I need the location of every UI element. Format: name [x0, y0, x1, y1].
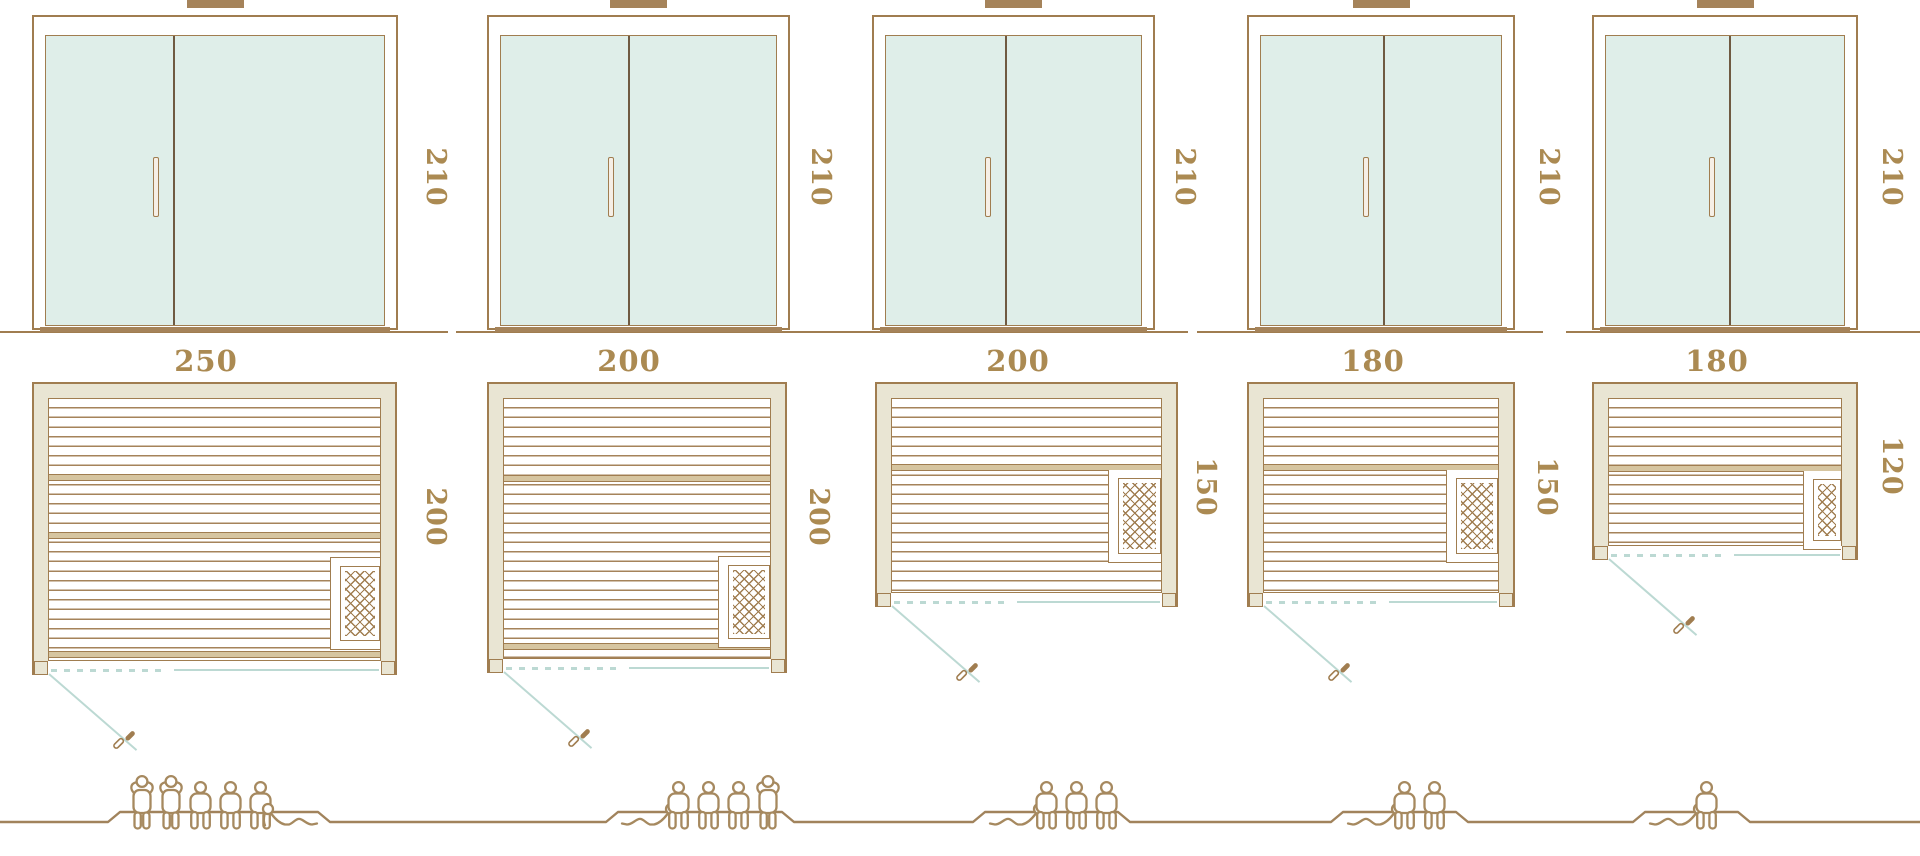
door-handle-icon	[1709, 157, 1715, 217]
open-door-leaf-icon	[954, 659, 982, 687]
door-threshold	[1600, 327, 1850, 332]
plan-interior-benches	[503, 398, 771, 659]
door-handle-icon	[985, 157, 991, 217]
door-height-label: 210	[1533, 137, 1563, 217]
door-threshold	[880, 327, 1147, 332]
plan-depth-label: 200	[420, 477, 450, 557]
door-divider	[1383, 36, 1385, 325]
roof-vent-icon	[985, 0, 1042, 8]
glass-wall-line	[1389, 601, 1497, 603]
wall-post	[489, 659, 503, 673]
bench-edge	[49, 651, 380, 658]
standing-person-icon	[160, 776, 181, 828]
door-opening-dashed-line	[894, 601, 1006, 604]
door-divider	[1729, 36, 1731, 325]
plan-interior-benches	[48, 398, 381, 661]
plan-width-label: 180	[1313, 344, 1433, 378]
sitting-person-icon	[669, 782, 689, 828]
sitting-person-icon	[729, 782, 749, 828]
door-divider	[1005, 36, 1007, 325]
door-elevation	[872, 15, 1155, 330]
glass-double-door	[500, 35, 777, 326]
plan-interior-benches	[1263, 398, 1499, 593]
bench-edge	[49, 474, 380, 481]
glass-double-door	[1605, 35, 1845, 326]
floor-plan	[875, 382, 1178, 607]
plan-width-label: 200	[569, 344, 689, 378]
door-elevation	[32, 15, 398, 330]
sitting-person-icon	[1425, 782, 1445, 828]
plan-interior-benches	[1608, 398, 1842, 546]
door-handle-icon	[153, 157, 159, 217]
bench-edge	[49, 532, 380, 539]
sauna-size-comparison-diagram: 210 250 200	[0, 0, 1920, 856]
plan-depth-label: 200	[803, 477, 833, 557]
door-elevation	[487, 15, 790, 330]
ground-platform-line	[0, 812, 1920, 822]
door-divider	[628, 36, 630, 325]
plan-width-label: 200	[958, 344, 1078, 378]
door-threshold	[495, 327, 782, 332]
wall-post	[771, 659, 785, 673]
standing-person-icon	[757, 776, 778, 828]
glass-double-door	[45, 35, 385, 326]
standing-person-icon	[131, 776, 152, 828]
sitting-person-icon	[221, 782, 241, 828]
plan-width-label: 250	[146, 344, 266, 378]
door-height-label: 210	[1876, 137, 1906, 217]
door-divider	[173, 36, 175, 325]
sitting-person-icon	[1067, 782, 1087, 828]
plan-width-label: 180	[1657, 344, 1777, 378]
roof-vent-icon	[1353, 0, 1410, 8]
roof-vent-icon	[1697, 0, 1754, 8]
capacity-figures-strip	[0, 726, 1920, 856]
wall-post	[1594, 546, 1608, 560]
floor-plan	[32, 382, 397, 675]
wall-post	[381, 661, 395, 675]
heater-crosshatch-icon	[718, 556, 770, 648]
door-threshold	[1255, 327, 1507, 332]
door-opening-dashed-line	[1266, 601, 1378, 604]
plan-interior-benches	[891, 398, 1162, 593]
sitting-person-icon	[1395, 782, 1415, 828]
heater-crosshatch-icon	[1108, 470, 1161, 563]
wall-post	[1162, 593, 1176, 607]
glass-wall-line	[174, 669, 379, 671]
door-height-label: 210	[420, 137, 450, 217]
glass-double-door	[885, 35, 1142, 326]
wall-post	[1249, 593, 1263, 607]
sitting-person-icon	[1097, 782, 1117, 828]
door-handle-icon	[608, 157, 614, 217]
door-opening-dashed-line	[51, 669, 163, 672]
door-opening-dashed-line	[1611, 554, 1723, 557]
heater-crosshatch-icon	[330, 557, 380, 650]
door-threshold	[40, 327, 390, 332]
open-door-leaf-icon	[1671, 612, 1699, 640]
sitting-person-icon	[191, 782, 211, 828]
reclining-person-icon	[263, 804, 317, 826]
glass-wall-line	[1734, 554, 1840, 556]
sitting-person-icon	[1037, 782, 1057, 828]
plan-depth-label: 150	[1190, 447, 1220, 527]
glass-wall-line	[629, 667, 769, 669]
door-height-label: 210	[1169, 137, 1199, 217]
floor-plan	[1592, 382, 1858, 560]
wall-post	[34, 661, 48, 675]
floor-plan	[487, 382, 787, 673]
sitting-person-icon	[1697, 782, 1717, 828]
heater-crosshatch-icon	[1803, 471, 1841, 550]
wall-post	[1499, 593, 1513, 607]
roof-vent-icon	[187, 0, 244, 8]
floor-plan	[1247, 382, 1515, 607]
roof-vent-icon	[610, 0, 667, 8]
door-height-label: 210	[805, 137, 835, 217]
door-elevation	[1592, 15, 1858, 330]
door-handle-icon	[1363, 157, 1369, 217]
glass-double-door	[1260, 35, 1502, 326]
glass-wall-line	[1017, 601, 1160, 603]
heater-crosshatch-icon	[1446, 470, 1498, 563]
open-door-leaf-icon	[1326, 659, 1354, 687]
door-opening-dashed-line	[506, 667, 618, 670]
plan-depth-label: 120	[1876, 426, 1906, 506]
wall-post	[877, 593, 891, 607]
sitting-person-icon	[699, 782, 719, 828]
door-elevation	[1247, 15, 1515, 330]
plan-depth-label: 150	[1531, 447, 1561, 527]
wall-post	[1842, 546, 1856, 560]
bench-edge	[504, 475, 770, 482]
